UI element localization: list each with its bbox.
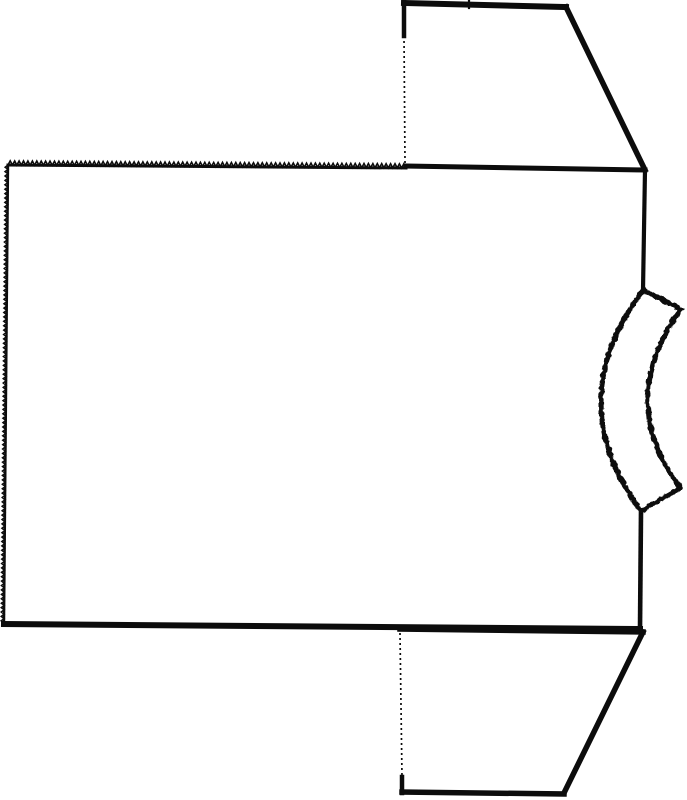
collar-bottom-end: [641, 488, 680, 511]
pattern-drawing-page: [0, 0, 687, 800]
top-sleeve-fold-line: [404, 36, 405, 163]
collar-band: [601, 290, 681, 511]
bottom-sleeve-fold-line: [400, 633, 402, 777]
top-sleeve-underarm-seam: [566, 7, 645, 170]
bottom-sleeve-shoulder-seam: [400, 629, 643, 632]
collar-top-end: [643, 290, 681, 309]
top-sleeve-shoulder-seam: [406, 166, 645, 170]
bottom-sleeve-cuff-edge: [402, 792, 564, 794]
collar-inner-curve: [601, 290, 643, 511]
tshirt-pattern-figure: [0, 0, 687, 800]
body-right-lower-seam: [640, 511, 641, 629]
body-panel: [1, 161, 645, 629]
body-right-upper-seam: [643, 170, 645, 290]
top-sleeve: [404, 1, 645, 170]
top-sleeve-cuff-edge: [404, 3, 566, 7]
collar-outer-curve: [648, 309, 681, 488]
bottom-sleeve: [400, 629, 643, 794]
bottom-sleeve-underarm-seam: [564, 632, 643, 793]
